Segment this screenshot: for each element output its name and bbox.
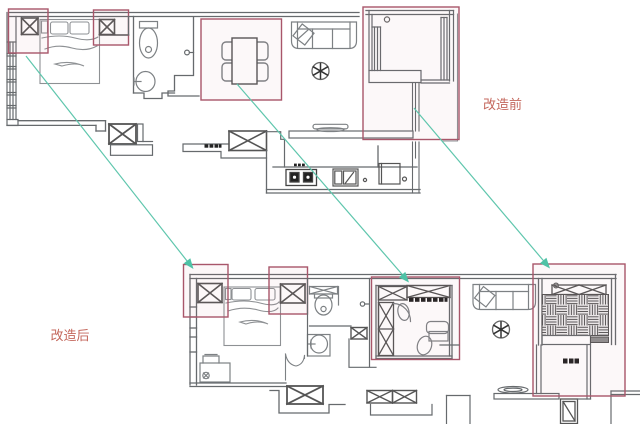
- svg-text:改造前: 改造前: [483, 97, 522, 112]
- svg-text:改造后: 改造后: [51, 328, 90, 343]
